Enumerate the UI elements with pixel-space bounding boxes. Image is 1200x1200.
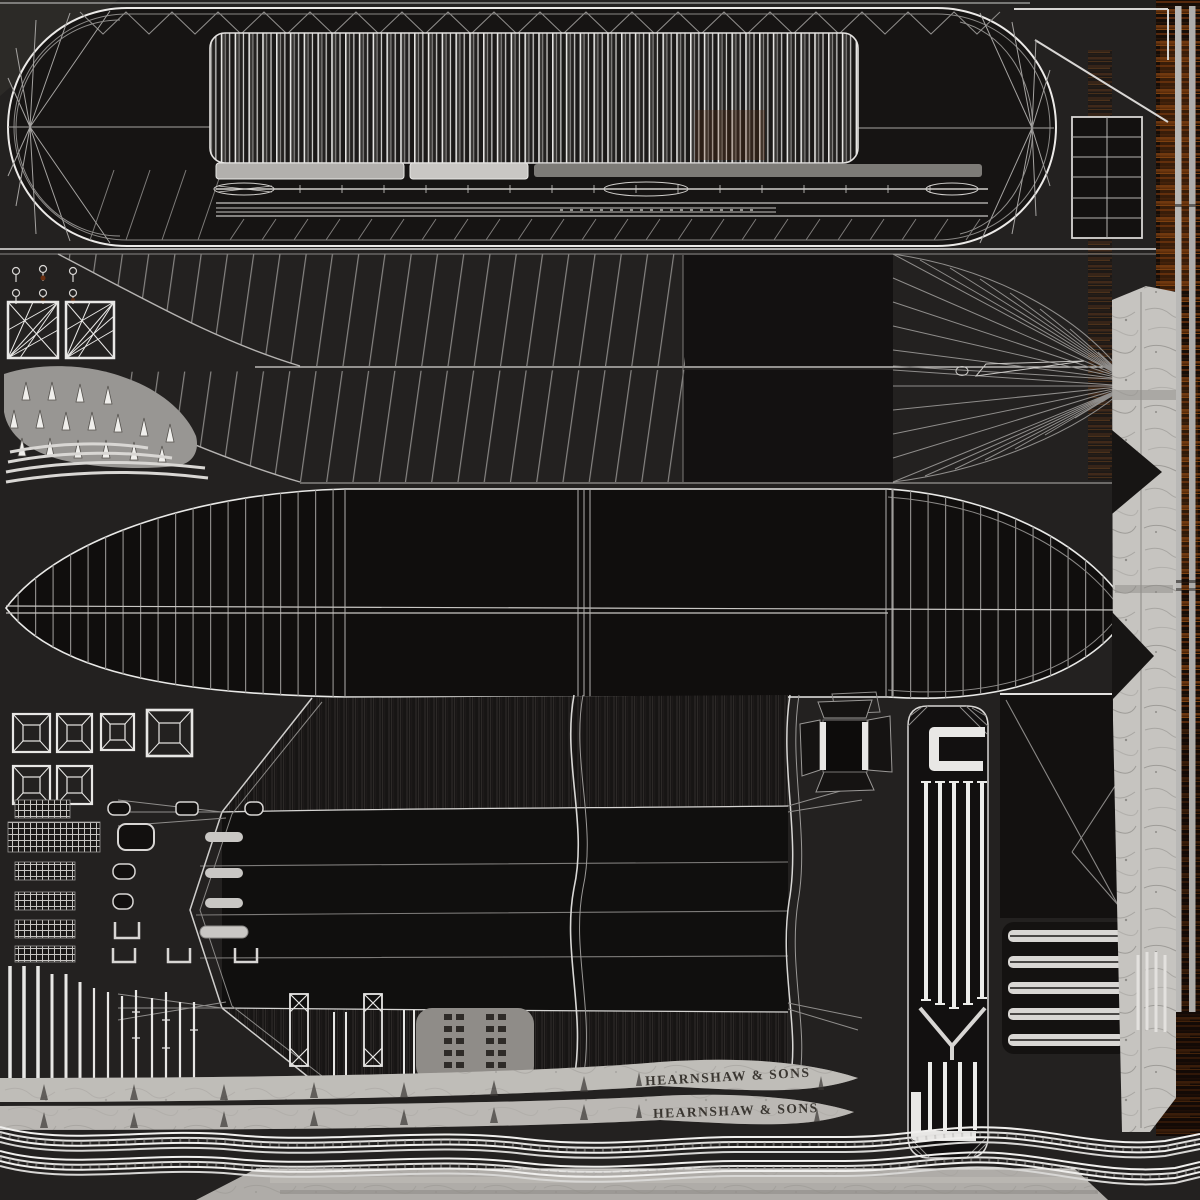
mesh-swatch	[15, 862, 75, 880]
tread-steps	[1002, 922, 1130, 1054]
keel-band	[1115, 585, 1173, 593]
mesh-swatch	[15, 946, 75, 962]
crate-edge-bar	[862, 722, 868, 770]
strake-panel-mid	[222, 806, 788, 1012]
uv-texture-atlas: HEARNSHAW & SONS HEARNSHAW & SONS	[0, 0, 1200, 1200]
mesh-swatch	[15, 800, 70, 818]
mast-band	[1189, 580, 1196, 583]
crate-flap-top	[818, 700, 872, 718]
round-square-fastener	[118, 824, 154, 850]
side-panel-lower	[683, 370, 893, 482]
long-pill-fastener	[200, 926, 248, 938]
deck-rust-smudge	[695, 110, 765, 160]
deck-bar	[534, 164, 982, 177]
deck-bar	[216, 163, 404, 179]
keel-marble-strip	[1112, 286, 1176, 1132]
oval-fastener	[176, 802, 198, 815]
mesh-swatch	[15, 892, 75, 910]
pill-fastener	[205, 868, 243, 878]
mesh-swatch	[15, 920, 75, 938]
mast-band	[1175, 204, 1182, 207]
gunwale-band	[196, 1169, 1108, 1200]
oval-fastener	[113, 864, 135, 879]
oval-fastener	[108, 802, 130, 815]
mast-band	[1189, 204, 1196, 207]
transom-panel	[1000, 694, 1132, 918]
atlas-canvas: HEARNSHAW & SONS HEARNSHAW & SONS	[0, 0, 1200, 1200]
crate-edge-bar	[820, 722, 826, 770]
mesh-swatch	[8, 822, 100, 852]
deck-bar	[410, 163, 528, 179]
crate-face	[823, 720, 867, 772]
oval-fastener	[245, 802, 263, 815]
deck-bars	[216, 163, 982, 179]
strake-band-top	[222, 695, 788, 812]
mast-band	[1189, 588, 1196, 591]
rust-bleed-strip	[1088, 50, 1112, 480]
oval-fastener	[113, 894, 133, 909]
crate-flap-right	[868, 716, 892, 772]
gunwale-texture	[196, 1169, 1108, 1200]
pill-fastener	[205, 832, 243, 842]
mast-pole-right	[1189, 6, 1196, 1012]
crate-flap-bottom	[816, 772, 874, 792]
floor-grate-strip	[908, 706, 988, 1158]
hull-plan-island	[6, 489, 1130, 698]
pill-fastener	[205, 898, 243, 908]
deck-island	[8, 8, 1056, 246]
keel-band	[1112, 390, 1176, 400]
crate-flap-left	[800, 720, 820, 776]
transom-fill	[1000, 694, 1132, 918]
side-panel-upper	[683, 255, 893, 366]
